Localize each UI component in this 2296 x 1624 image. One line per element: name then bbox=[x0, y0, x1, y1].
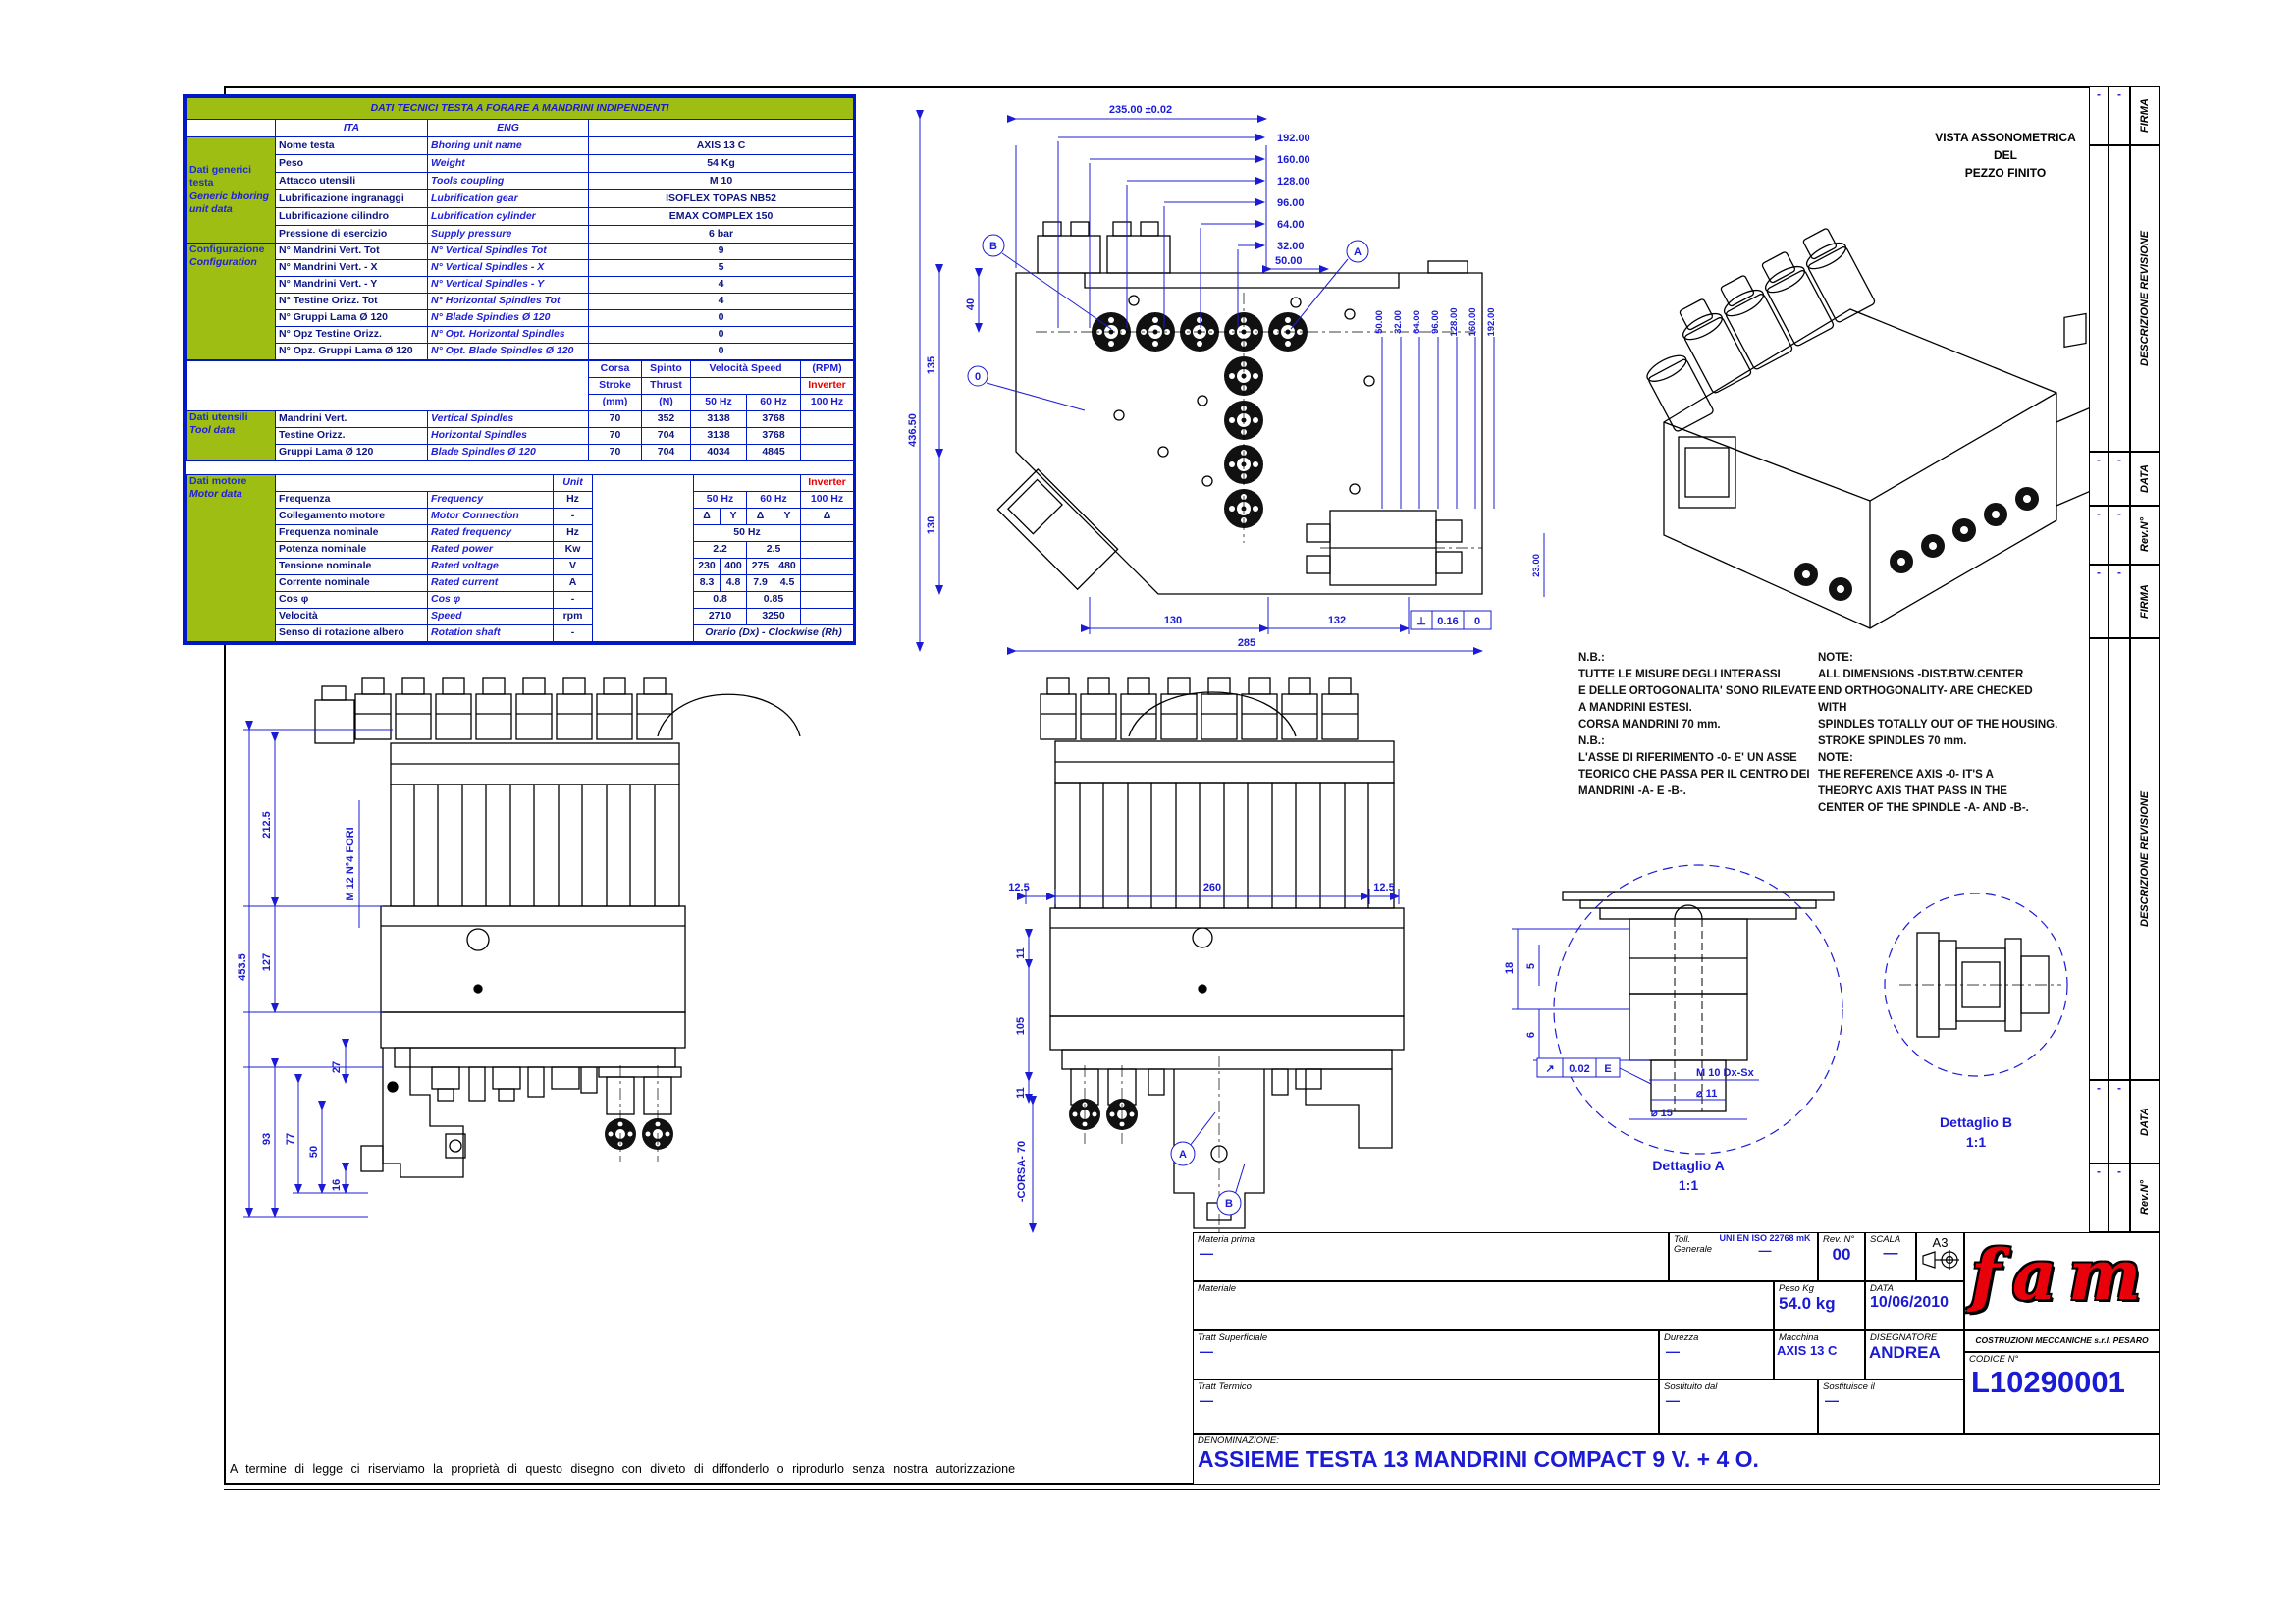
row-value: 704 bbox=[642, 445, 691, 461]
row-value: 6 bar bbox=[589, 226, 854, 244]
revision-cell: - bbox=[2089, 565, 2109, 638]
row-unit: A bbox=[554, 575, 593, 592]
tolerance-datum: 0 bbox=[1474, 616, 1480, 627]
table-generic-config: DATI TECNICI TESTA A FORARE A MANDRINI I… bbox=[186, 97, 854, 360]
row-value: 3138 bbox=[691, 411, 747, 428]
dim: 32.00 bbox=[1277, 241, 1305, 252]
sostituisce-il-cell: Sostituisce il — bbox=[1818, 1380, 1964, 1434]
thread-note: M 12 N°4 FORI bbox=[345, 827, 356, 900]
dim: 5 bbox=[1525, 963, 1537, 969]
dim: 18 bbox=[1504, 962, 1516, 974]
detail-a-scale: 1:1 bbox=[1679, 1177, 1698, 1193]
iso-spindle-noses bbox=[1794, 487, 2039, 601]
note-line: L'ASSE DI RIFERIMENTO -0- E' UN ASSE bbox=[1578, 750, 1812, 767]
note-line: END ORTHOGONALITY- ARE CHECKED bbox=[1818, 683, 2052, 700]
unit-header: Unit bbox=[554, 475, 593, 492]
spindle-balloon-a: A bbox=[1179, 1149, 1187, 1161]
tolerance-symbol: ⊥ bbox=[1416, 616, 1426, 627]
iso-caption-3: PEZZO FINITO bbox=[1965, 166, 2046, 180]
front-mid-centerlines bbox=[1085, 1056, 1219, 1237]
row-label: Motor Connection bbox=[428, 509, 554, 525]
technical-data-table: DATI TECNICI TESTA A FORARE A MANDRINI I… bbox=[183, 94, 856, 645]
row-label: N° Horizontal Spindles Tot bbox=[428, 294, 589, 310]
dim: 27 bbox=[331, 1061, 343, 1073]
row-value: 0 bbox=[589, 310, 854, 327]
row-label: N° Vertical Spindles - X bbox=[428, 260, 589, 277]
macchina-cell: Macchina AXIS 13 C bbox=[1774, 1330, 1865, 1380]
row-value: ISOFLEX TOPAS NB52 bbox=[589, 190, 854, 208]
revision-label-cell: FIRMA bbox=[2130, 565, 2160, 638]
spindle-balloon-b: B bbox=[1225, 1198, 1233, 1210]
tolerance-datum: E bbox=[1604, 1063, 1611, 1075]
runout-symbol: ↗ bbox=[1545, 1063, 1554, 1075]
row-label: Gruppi Lama Ø 120 bbox=[276, 445, 428, 461]
tolerance-standard: UNI EN ISO 22768 mK bbox=[1713, 1233, 1817, 1243]
row-value: Δ bbox=[747, 509, 774, 525]
revision-cell: - bbox=[2109, 1164, 2130, 1232]
revision-cell: - bbox=[2109, 506, 2130, 565]
descrizione-revisione-label: DESCRIZIONE REVISIONE bbox=[2131, 639, 2159, 1079]
tool-col-header: 60 Hz bbox=[747, 395, 801, 411]
dim: 127 bbox=[261, 953, 273, 971]
stroke-dim: -CORSA- 70 bbox=[1016, 1141, 1028, 1202]
dim: 130 bbox=[1164, 615, 1182, 626]
row-label: Rotation shaft bbox=[428, 625, 554, 642]
dim: 64.00 bbox=[1277, 219, 1305, 231]
section-tool: Dati utensili Tool data bbox=[187, 411, 276, 461]
note-line: WITH bbox=[1818, 700, 2052, 717]
note-line: A MANDRINI ESTESI. bbox=[1578, 700, 1812, 717]
row-unit: Kw bbox=[554, 542, 593, 559]
row-label: Rated current bbox=[428, 575, 554, 592]
detail-a-dimensions bbox=[1512, 929, 1759, 1119]
dim: 135 bbox=[926, 356, 937, 374]
revision-label-cell: FIRMA bbox=[2130, 86, 2160, 145]
fam-logo: fam bbox=[1965, 1233, 2159, 1318]
row-label: Frequenza nominale bbox=[276, 525, 428, 542]
front-left-body bbox=[315, 678, 800, 1177]
codice-value: L10290001 bbox=[1965, 1365, 2159, 1400]
row-value: 3250 bbox=[747, 609, 801, 625]
materiale-cell: Materiale bbox=[1193, 1281, 1774, 1330]
revision-cell: - bbox=[2089, 1164, 2109, 1232]
empty-cell bbox=[593, 475, 694, 642]
empty-cell bbox=[691, 378, 801, 395]
durezza-cell: Durezza — bbox=[1659, 1330, 1774, 1380]
tool-col-header: Stroke bbox=[589, 378, 642, 395]
revision-cell: - bbox=[2089, 506, 2109, 565]
row-value: EMAX COMPLEX 150 bbox=[589, 208, 854, 226]
row-label: N° Testine Orizz. Tot bbox=[276, 294, 428, 310]
row-unit: Hz bbox=[554, 492, 593, 509]
durezza-value: — bbox=[1660, 1343, 1773, 1359]
empty-cell bbox=[694, 475, 801, 492]
row-label: N° Mandrini Vert. - Y bbox=[276, 277, 428, 294]
sostituisce-il-value: — bbox=[1819, 1392, 1963, 1408]
row-value: 2710 bbox=[694, 609, 747, 625]
note-line: THE REFERENCE AXIS -0- IT'S A bbox=[1818, 767, 2052, 784]
row-value: 7.9 bbox=[747, 575, 774, 592]
dim: 128.00 bbox=[1277, 176, 1310, 188]
thread-callout: M 10 Dx-Sx bbox=[1696, 1067, 1755, 1079]
note-line: NOTE: bbox=[1818, 750, 2052, 767]
row-label: Nome testa bbox=[276, 137, 428, 155]
row-value: 50 Hz bbox=[694, 525, 801, 542]
row-label: Rated frequency bbox=[428, 525, 554, 542]
note-line: CORSA MANDRINI 70 mm. bbox=[1578, 717, 1812, 733]
row-label: Mandrini Vert. bbox=[276, 411, 428, 428]
row-value: 0 bbox=[589, 327, 854, 344]
materia-prima-value: — bbox=[1194, 1245, 1668, 1261]
revision-cell: - bbox=[2109, 1080, 2130, 1164]
notes-italian: N.B.: TUTTE LE MISURE DEGLI INTERASSI E … bbox=[1578, 650, 1812, 800]
tool-col-header: Velocità Speed bbox=[691, 361, 801, 378]
revision-cell bbox=[2109, 638, 2130, 1080]
table-tool-data: Corsa Spinto Velocità Speed (RPM) Stroke… bbox=[186, 360, 854, 461]
row-label: Lubrificazione ingranaggi bbox=[276, 190, 428, 208]
top-view-spindles bbox=[1092, 312, 1308, 528]
row-unit: V bbox=[554, 559, 593, 575]
tool-col-header: Thrust bbox=[642, 378, 691, 395]
row-value: 70 bbox=[589, 445, 642, 461]
row-label: N° Opt. Horizontal Spindles bbox=[428, 327, 589, 344]
revision-cell: - bbox=[2089, 1080, 2109, 1164]
rev-value: 00 bbox=[1819, 1245, 1864, 1265]
rev-n-label: Rev.N° bbox=[2131, 1164, 2159, 1231]
row-label: Tools coupling bbox=[428, 173, 589, 190]
row-label: Blade Spindles Ø 120 bbox=[428, 445, 589, 461]
peso-value: 54.0 kg bbox=[1775, 1294, 1864, 1314]
sostituito-dal-cell: Sostituito dal — bbox=[1659, 1380, 1818, 1434]
row-label: Rated power bbox=[428, 542, 554, 559]
revision-cell: - bbox=[2109, 452, 2130, 506]
sheet-frame-outer-line bbox=[224, 1489, 2160, 1490]
drawing-sheet: DATI TECNICI TESTA A FORARE A MANDRINI I… bbox=[0, 0, 2296, 1624]
dim: 40 bbox=[965, 298, 977, 310]
data-cell: DATA 10/06/2010 bbox=[1865, 1281, 1964, 1330]
detail-a-bore-lines bbox=[1675, 919, 1702, 1111]
row-value: 50 Hz bbox=[694, 492, 747, 509]
disegnatore-cell: DISEGNATORE ANDREA bbox=[1865, 1330, 1964, 1380]
row-label: Tensione nominale bbox=[276, 559, 428, 575]
row-value: AXIS 13 C bbox=[589, 137, 854, 155]
row-value: 4845 bbox=[747, 445, 801, 461]
firma-label: FIRMA bbox=[2131, 87, 2159, 144]
datum-balloon-0: 0 bbox=[975, 371, 981, 383]
formato-value: A3 bbox=[1917, 1233, 1963, 1250]
col-header-eng: ENG bbox=[428, 120, 589, 137]
note-line: TEORICO CHE PASSA PER IL CENTRO DEI bbox=[1578, 767, 1812, 784]
datum-balloon-b: B bbox=[989, 241, 997, 252]
scala-cell: SCALA — bbox=[1865, 1232, 1916, 1281]
title-block: Materia prima — Toll.Generale UNI EN ISO… bbox=[1193, 1232, 2160, 1485]
dim-diameter: ⌀ 15 bbox=[1651, 1108, 1673, 1119]
dim: 12.5 bbox=[1008, 882, 1029, 893]
company-cell: COSTRUZIONI MECCANICHE s.r.l. PESARO bbox=[1964, 1330, 2160, 1352]
revision-label-cell: DESCRIZIONE REVISIONE bbox=[2130, 638, 2160, 1080]
row-label: Frequency bbox=[428, 492, 554, 509]
tool-col-header: (mm) bbox=[589, 395, 642, 411]
row-unit: rpm bbox=[554, 609, 593, 625]
row-label: N° Opt. Blade Spindles Ø 120 bbox=[428, 344, 589, 360]
dim-overall-top: 235.00 ±0.02 bbox=[1109, 104, 1172, 116]
row-label: Speed bbox=[428, 609, 554, 625]
data-label: DATA bbox=[2131, 1081, 2159, 1163]
empty-cell bbox=[801, 592, 854, 609]
revision-label-cell: DATA bbox=[2130, 1080, 2160, 1164]
empty-cell bbox=[801, 445, 854, 461]
rev-n-label: Rev.N° bbox=[2131, 507, 2159, 564]
revision-label-cell: DESCRIZIONE REVISIONE bbox=[2130, 145, 2160, 452]
sostituito-dal-value: — bbox=[1660, 1392, 1817, 1408]
dim: 64.00 bbox=[1412, 310, 1422, 334]
empty-cell bbox=[801, 609, 854, 625]
section-config: Configurazione Configuration bbox=[187, 244, 276, 360]
empty-cell bbox=[801, 542, 854, 559]
tratt-termico-value: — bbox=[1194, 1392, 1658, 1408]
row-value: 4034 bbox=[691, 445, 747, 461]
row-value: 0.85 bbox=[747, 592, 801, 609]
row-label: N° Gruppi Lama Ø 120 bbox=[276, 310, 428, 327]
tolerance-value: — bbox=[1713, 1243, 1817, 1258]
descrizione-revisione-label: DESCRIZIONE REVISIONE bbox=[2131, 146, 2159, 451]
detail-a-view: 18 5 6 ↗ 0.02 E M 10 Dx-Sx ⌀ 11 ⌀ 15 Det… bbox=[1502, 862, 1845, 1216]
dim: 128.00 bbox=[1449, 307, 1460, 336]
row-unit: - bbox=[554, 625, 593, 642]
row-label: Bhoring unit name bbox=[428, 137, 589, 155]
row-label: Collegamento motore bbox=[276, 509, 428, 525]
row-label: N° Blade Spindles Ø 120 bbox=[428, 310, 589, 327]
tolerance-value: 0.02 bbox=[1569, 1063, 1589, 1075]
note-line: NOTE: bbox=[1818, 650, 2052, 667]
dim: 32.00 bbox=[1393, 310, 1404, 334]
empty-cell bbox=[589, 120, 854, 137]
inverter-header: Inverter bbox=[801, 475, 854, 492]
tool-col-header: Corsa bbox=[589, 361, 642, 378]
row-value: 4.5 bbox=[774, 575, 801, 592]
denominazione-value: ASSIEME TESTA 13 MANDRINI COMPACT 9 V. +… bbox=[1194, 1446, 2159, 1473]
tolleranza-cell: Toll.Generale UNI EN ISO 22768 mK — bbox=[1669, 1232, 1818, 1281]
row-value: 0.8 bbox=[694, 592, 747, 609]
note-line: STROKE SPINDLES 70 mm. bbox=[1818, 733, 2052, 750]
dim: 16 bbox=[331, 1179, 343, 1191]
dim: 77 bbox=[285, 1133, 296, 1145]
empty-cell bbox=[801, 559, 854, 575]
rev-cell: Rev. N° 00 bbox=[1818, 1232, 1865, 1281]
detail-b-view: Dettaglio B 1:1 bbox=[1860, 882, 2106, 1166]
note-line: THEORYC AXIS THAT PASS IN THE bbox=[1818, 784, 2052, 800]
table-gap bbox=[186, 461, 853, 474]
dim: 132 bbox=[1328, 615, 1346, 626]
revision-label-cell: DATA bbox=[2130, 452, 2160, 506]
note-line: CENTER OF THE SPINDLE -A- AND -B-. bbox=[1818, 800, 2052, 817]
tolerance-value: 0.16 bbox=[1437, 616, 1458, 627]
empty-cell bbox=[801, 525, 854, 542]
row-value: Y bbox=[774, 509, 801, 525]
row-value: 230 bbox=[694, 559, 721, 575]
revision-cell bbox=[2089, 145, 2109, 452]
section-generic: Dati generici testa Generic bhoring unit… bbox=[187, 137, 276, 244]
row-label: Senso di rotazione albero bbox=[276, 625, 428, 642]
empty-cell bbox=[801, 428, 854, 445]
firma-label: FIRMA bbox=[2131, 566, 2159, 637]
revision-label-cell: Rev.N° bbox=[2130, 1164, 2160, 1232]
note-line: ALL DIMENSIONS -DIST.BTW.CENTER bbox=[1818, 667, 2052, 683]
dim: 11 bbox=[1015, 1087, 1027, 1099]
row-label: Rated voltage bbox=[428, 559, 554, 575]
tratt-termico-cell: Tratt Termico — bbox=[1193, 1380, 1659, 1434]
note-line: TUTTE LE MISURE DEGLI INTERASSI bbox=[1578, 667, 1812, 683]
row-label: N° Opz. Gruppi Lama Ø 120 bbox=[276, 344, 428, 360]
table-motor-data: Dati motore Motor data Unit Inverter Fre… bbox=[186, 474, 854, 642]
dim: 50.00 bbox=[1275, 255, 1303, 267]
row-value: 400 bbox=[721, 559, 747, 575]
row-value: 3768 bbox=[747, 428, 801, 445]
row-value: 70 bbox=[589, 411, 642, 428]
dim: 105 bbox=[1015, 1017, 1027, 1035]
dim: 11 bbox=[1015, 947, 1027, 959]
projection-symbol-icon bbox=[1921, 1250, 1960, 1270]
dim: 453.5 bbox=[237, 953, 248, 981]
scala-value: — bbox=[1866, 1245, 1915, 1262]
row-label: Horizontal Spindles bbox=[428, 428, 589, 445]
row-value: 275 bbox=[747, 559, 774, 575]
row-label: N° Mandrini Vert. Tot bbox=[276, 244, 428, 260]
codice-cell: CODICE N° L10290001 bbox=[1964, 1352, 2160, 1434]
row-value: Δ bbox=[694, 509, 721, 525]
row-label: Lubrificazione cilindro bbox=[276, 208, 428, 226]
row-value: 5 bbox=[589, 260, 854, 277]
tratt-superficiale-cell: Tratt Superficiale — bbox=[1193, 1330, 1659, 1380]
detail-b-scale: 1:1 bbox=[1966, 1134, 1986, 1150]
dim: 6 bbox=[1525, 1032, 1537, 1038]
section-motor: Dati motore Motor data bbox=[187, 475, 276, 642]
dim: 50.00 bbox=[1374, 310, 1385, 334]
row-value: 100 Hz bbox=[801, 492, 854, 509]
macchina-value: AXIS 13 C bbox=[1775, 1343, 1864, 1358]
row-label: Testine Orizz. bbox=[276, 428, 428, 445]
dim: 260 bbox=[1203, 882, 1221, 893]
row-label: Vertical Spindles bbox=[428, 411, 589, 428]
row-value: 2.2 bbox=[694, 542, 747, 559]
revision-strip: - - FIRMA DESCRIZIONE REVISIONE - - DATA… bbox=[2089, 86, 2160, 1232]
company-name: COSTRUZIONI MECCANICHE s.r.l. PESARO bbox=[1965, 1331, 2159, 1345]
row-label: N° Opz Testine Orizz. bbox=[276, 327, 428, 344]
row-value: 0 bbox=[589, 344, 854, 360]
tool-col-header: (RPM) bbox=[801, 361, 854, 378]
revision-cell: - bbox=[2109, 565, 2130, 638]
row-label: Frequenza bbox=[276, 492, 428, 509]
front-view-left: 453.5 212.5 127 93 77 50 27 16 M 12 N°4 … bbox=[236, 643, 805, 1252]
row-unit: Hz bbox=[554, 525, 593, 542]
dim: 96.00 bbox=[1277, 197, 1305, 209]
row-value: 3138 bbox=[691, 428, 747, 445]
front-mid-body bbox=[1041, 678, 1404, 1228]
legal-footer: A termine di legge ci riserviamo la prop… bbox=[230, 1462, 1015, 1476]
row-value: 2.5 bbox=[747, 542, 801, 559]
revision-cell: - bbox=[2089, 452, 2109, 506]
empty-cell bbox=[276, 475, 554, 492]
dim: 160.00 bbox=[1277, 154, 1310, 166]
row-label: N° Vertical Spindles Tot bbox=[428, 244, 589, 260]
front-view-middle: 12.5 260 12.5 11 105 11 -CORSA- 70 A B bbox=[982, 643, 1423, 1252]
row-value: M 10 bbox=[589, 173, 854, 190]
notes-english: NOTE: ALL DIMENSIONS -DIST.BTW.CENTER EN… bbox=[1818, 650, 2052, 817]
note-line: N.B.: bbox=[1578, 733, 1812, 750]
tratt-superficiale-value: — bbox=[1194, 1343, 1658, 1359]
top-view-drawing: 235.00 ±0.02 192.00 160.00 128.00 96.00 … bbox=[908, 86, 1556, 656]
note-line: E DELLE ORTOGONALITA' SONO RILEVATE bbox=[1578, 683, 1812, 700]
revision-cell: - bbox=[2089, 86, 2109, 145]
row-label: Supply pressure bbox=[428, 226, 589, 244]
row-label: Velocità bbox=[276, 609, 428, 625]
row-label: Peso bbox=[276, 155, 428, 173]
row-value: 60 Hz bbox=[747, 492, 801, 509]
row-value: Δ bbox=[801, 509, 854, 525]
note-line: N.B.: bbox=[1578, 650, 1812, 667]
row-label: Weight bbox=[428, 155, 589, 173]
row-value: 8.3 bbox=[694, 575, 721, 592]
detail-a-caption: Dettaglio A bbox=[1652, 1158, 1724, 1173]
row-label: Lubrification cylinder bbox=[428, 208, 589, 226]
peso-cell: Peso Kg 54.0 kg bbox=[1774, 1281, 1865, 1330]
empty-cell bbox=[187, 361, 589, 411]
iso-caption-1: VISTA ASSONOMETRICA bbox=[1935, 131, 2076, 144]
logo-cell: fam bbox=[1964, 1232, 2160, 1330]
iso-caption-2: DEL bbox=[1994, 148, 2017, 162]
row-unit: - bbox=[554, 509, 593, 525]
dim: 436.50 bbox=[907, 413, 919, 447]
row-value: 4.8 bbox=[721, 575, 747, 592]
data-label: DATA bbox=[2131, 453, 2159, 505]
empty-cell bbox=[801, 575, 854, 592]
row-value: 4 bbox=[589, 277, 854, 294]
empty-cell bbox=[187, 120, 276, 137]
dim: 130 bbox=[926, 516, 937, 534]
detail-b-caption: Dettaglio B bbox=[1940, 1114, 2012, 1130]
dim: 93 bbox=[261, 1133, 273, 1145]
row-value: 704 bbox=[642, 428, 691, 445]
dim: 192.00 bbox=[1486, 307, 1497, 336]
dim: 212.5 bbox=[261, 811, 273, 839]
tool-col-header: 50 Hz bbox=[691, 395, 747, 411]
formato-cell: A3 bbox=[1916, 1232, 1964, 1281]
data-value: 10/06/2010 bbox=[1866, 1294, 1963, 1312]
revision-label-cell: Rev.N° bbox=[2130, 506, 2160, 565]
dim: 12.5 bbox=[1373, 882, 1394, 893]
iso-geometry bbox=[1643, 224, 2091, 628]
tool-col-header: 100 Hz bbox=[801, 395, 854, 411]
dim: 160.00 bbox=[1468, 307, 1478, 336]
row-value: 70 bbox=[589, 428, 642, 445]
row-label: Cos φ bbox=[276, 592, 428, 609]
row-label: Attacco utensili bbox=[276, 173, 428, 190]
row-label: Pressione di esercizio bbox=[276, 226, 428, 244]
row-unit: - bbox=[554, 592, 593, 609]
row-value: 352 bbox=[642, 411, 691, 428]
row-value: Y bbox=[721, 509, 747, 525]
row-label: Lubrification gear bbox=[428, 190, 589, 208]
revision-cell bbox=[2109, 145, 2130, 452]
row-label: Corrente nominale bbox=[276, 575, 428, 592]
col-header-ita: ITA bbox=[276, 120, 428, 137]
row-value: Orario (Dx) - Clockwise (Rh) bbox=[694, 625, 854, 642]
note-line: SPINDLES TOTALLY OUT OF THE HOUSING. bbox=[1818, 717, 2052, 733]
revision-cell: - bbox=[2109, 86, 2130, 145]
dim: 96.00 bbox=[1430, 310, 1441, 334]
datum-balloon-a: A bbox=[1354, 246, 1362, 258]
note-line: MANDRINI -A- E -B-. bbox=[1578, 784, 1812, 800]
